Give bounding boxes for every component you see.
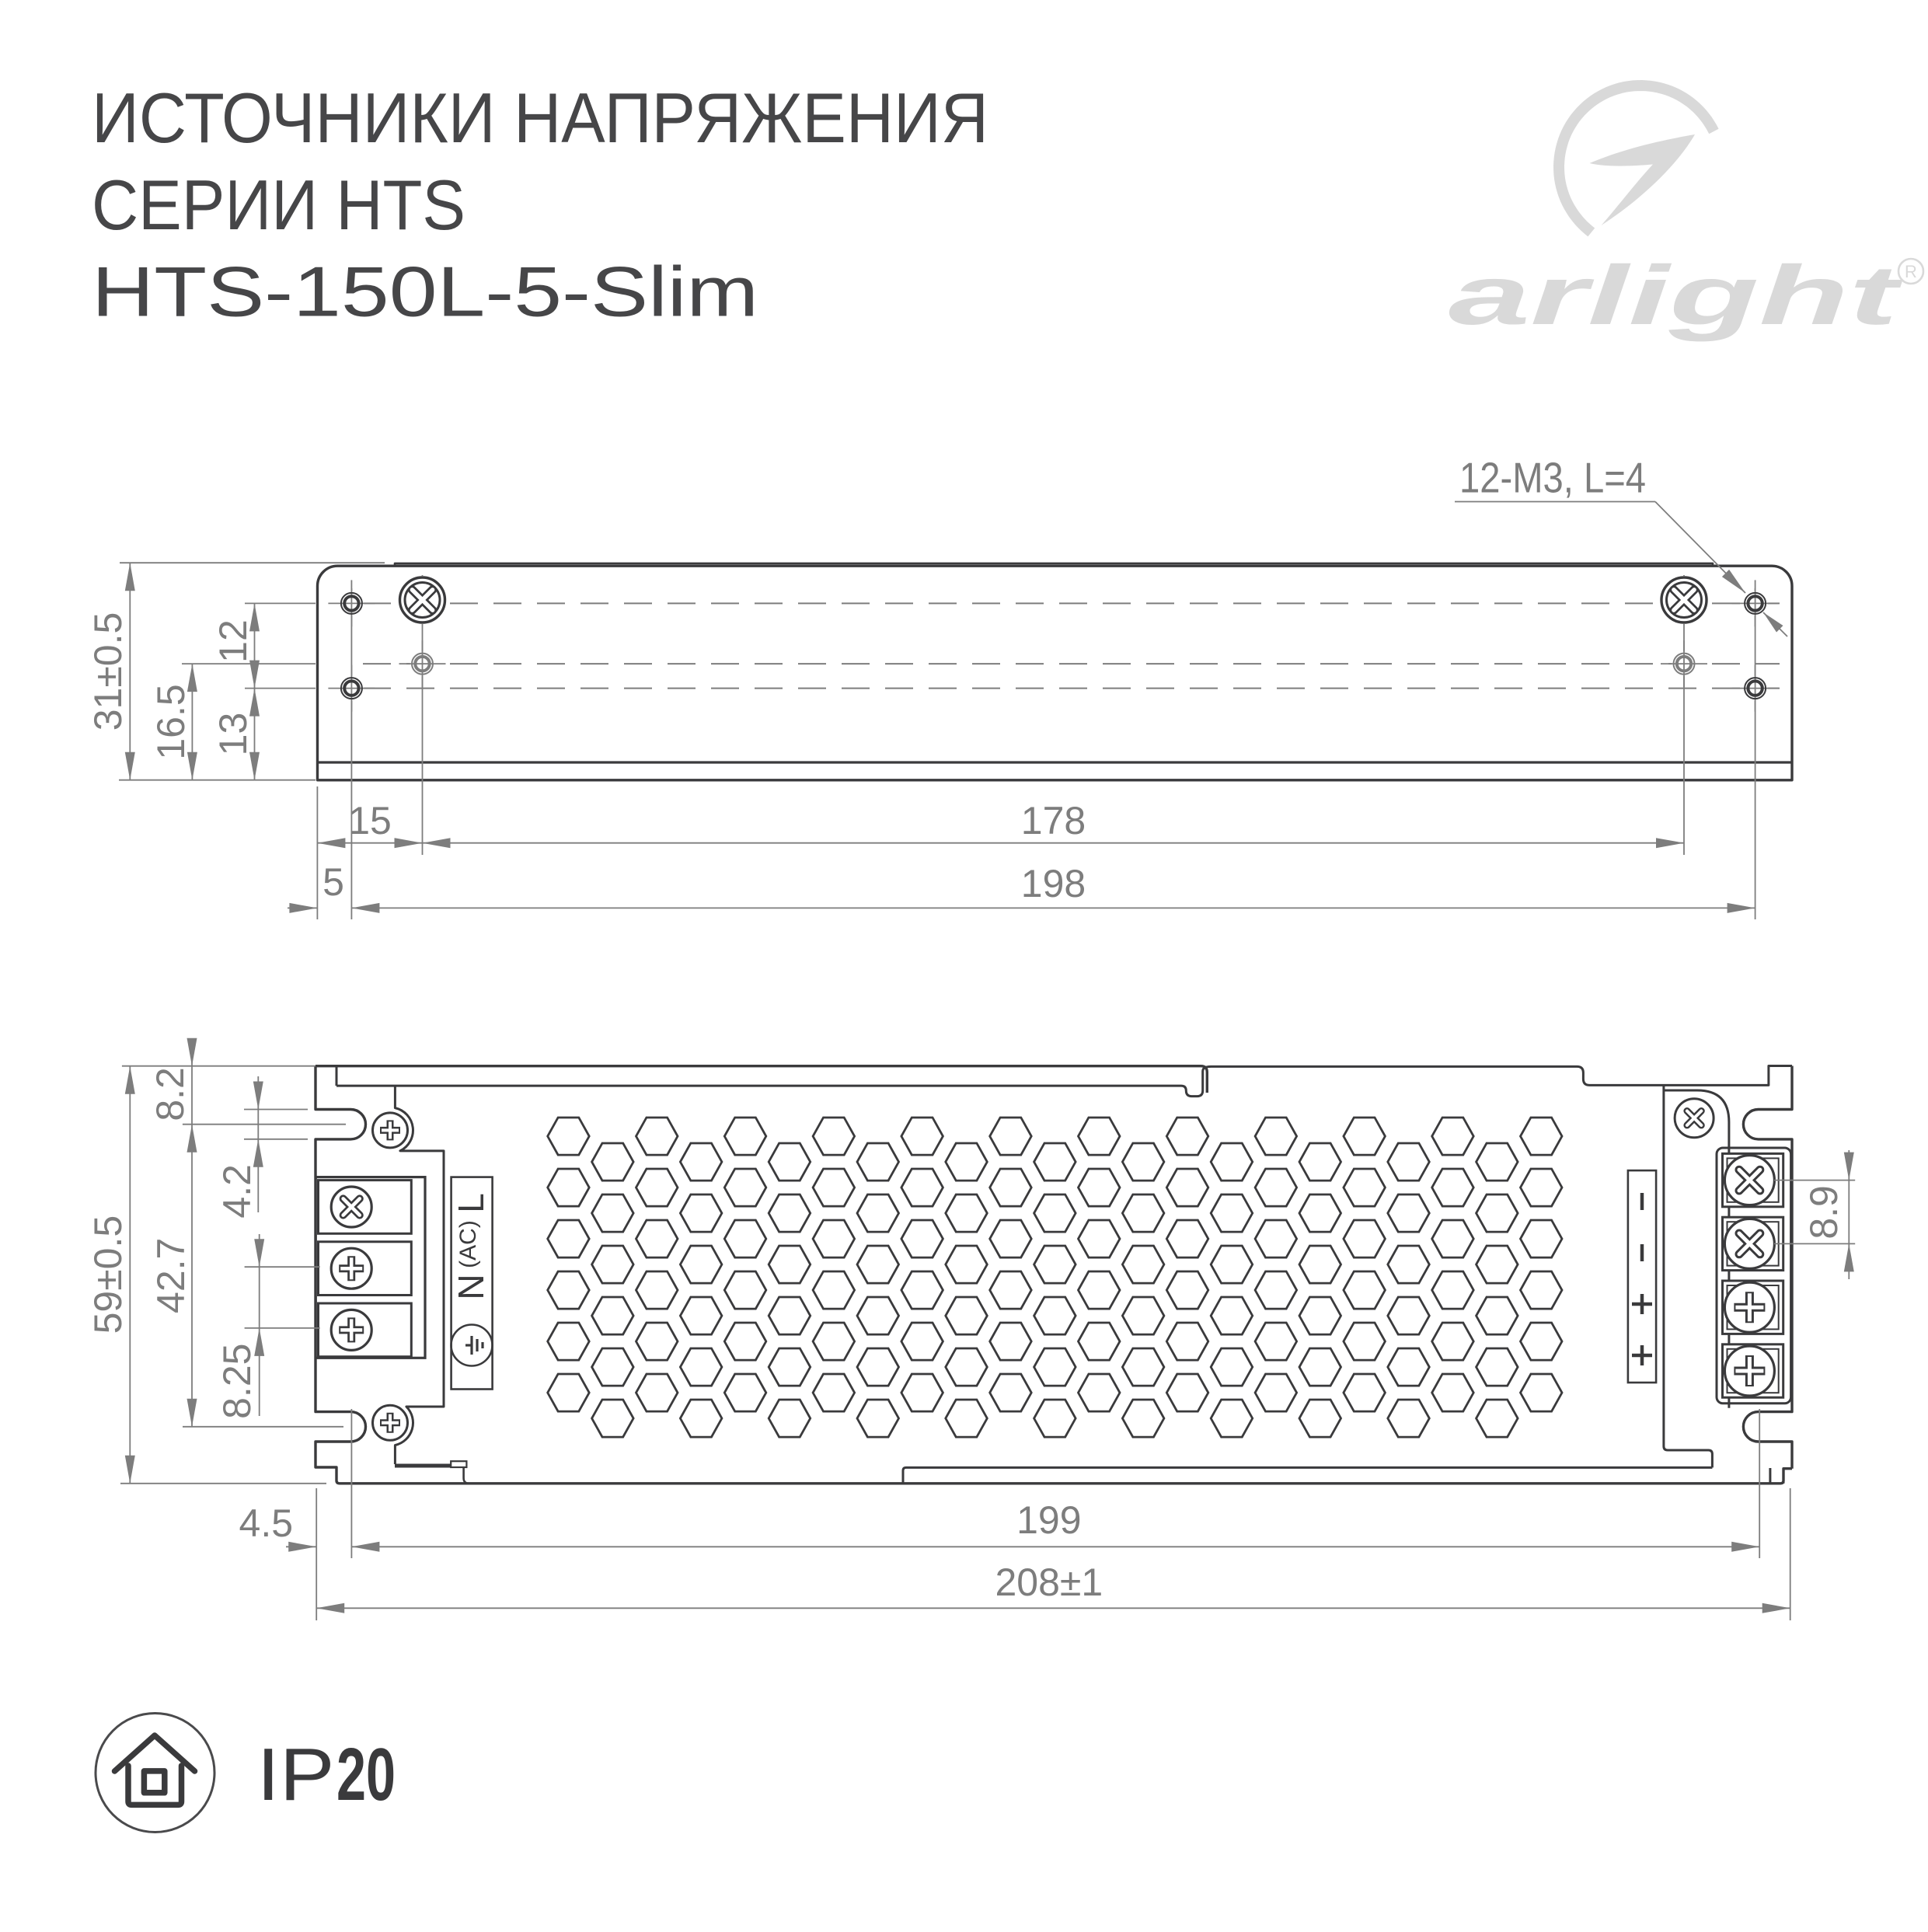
svg-text:4.2: 4.2 <box>215 1164 259 1219</box>
svg-text:IP: IP <box>257 1733 335 1816</box>
svg-text:8.2: 8.2 <box>148 1067 192 1121</box>
svg-text:ИСТОЧНИКИ НАПРЯЖЕНИЯ: ИСТОЧНИКИ НАПРЯЖЕНИЯ <box>92 79 988 158</box>
svg-text:8.25: 8.25 <box>215 1344 259 1419</box>
svg-text:15: 15 <box>348 799 392 842</box>
svg-text:208±1: 208±1 <box>995 1561 1103 1604</box>
svg-text:12: 12 <box>211 619 255 663</box>
svg-text:L: L <box>451 1193 491 1213</box>
svg-text:199: 199 <box>1016 1498 1081 1542</box>
svg-text:HTS-150L-5-Slim: HTS-150L-5-Slim <box>92 253 758 332</box>
svg-text:N: N <box>451 1274 491 1299</box>
svg-text:(AC): (AC) <box>455 1220 481 1268</box>
svg-text:178: 178 <box>1021 799 1086 842</box>
svg-text:arlight: arlight <box>1449 248 1903 342</box>
svg-text:8.9: 8.9 <box>1802 1185 1846 1240</box>
svg-text:16.5: 16.5 <box>149 684 193 759</box>
svg-text:31±0.5: 31±0.5 <box>86 612 130 731</box>
svg-text:R: R <box>1905 262 1917 281</box>
svg-text:59±0.5: 59±0.5 <box>86 1215 130 1334</box>
svg-text:198: 198 <box>1021 862 1086 905</box>
svg-text:20: 20 <box>336 1733 396 1816</box>
svg-text:4.5: 4.5 <box>239 1501 294 1545</box>
svg-text:5: 5 <box>322 860 344 904</box>
svg-text:42.7: 42.7 <box>149 1238 193 1313</box>
svg-text:13: 13 <box>211 713 255 756</box>
svg-text:12-M3, L=4: 12-M3, L=4 <box>1459 454 1646 502</box>
svg-text:СЕРИИ HTS: СЕРИИ HTS <box>92 166 465 245</box>
